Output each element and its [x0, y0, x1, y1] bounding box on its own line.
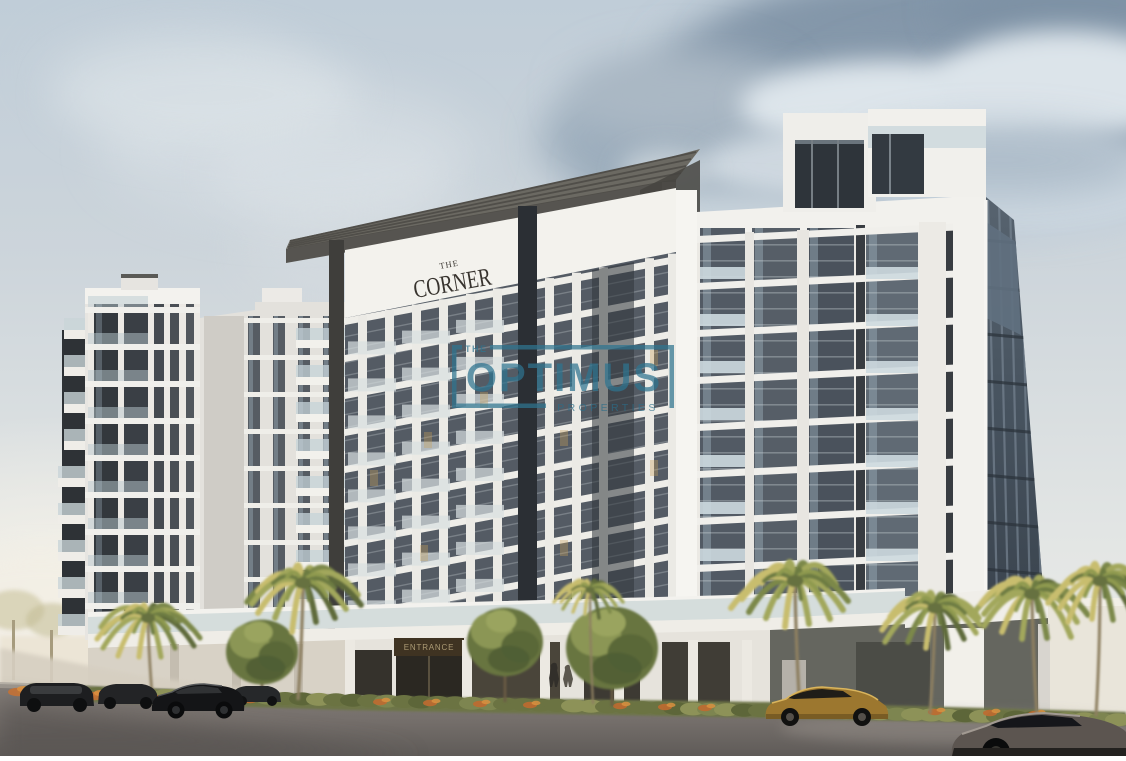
svg-text:PROPERTIES: PROPERTIES [557, 402, 659, 414]
svg-text:OPTIMUS: OPTIMUS [466, 356, 662, 400]
svg-text:ENTRANCE: ENTRANCE [404, 643, 454, 652]
svg-text:THE: THE [465, 344, 488, 354]
